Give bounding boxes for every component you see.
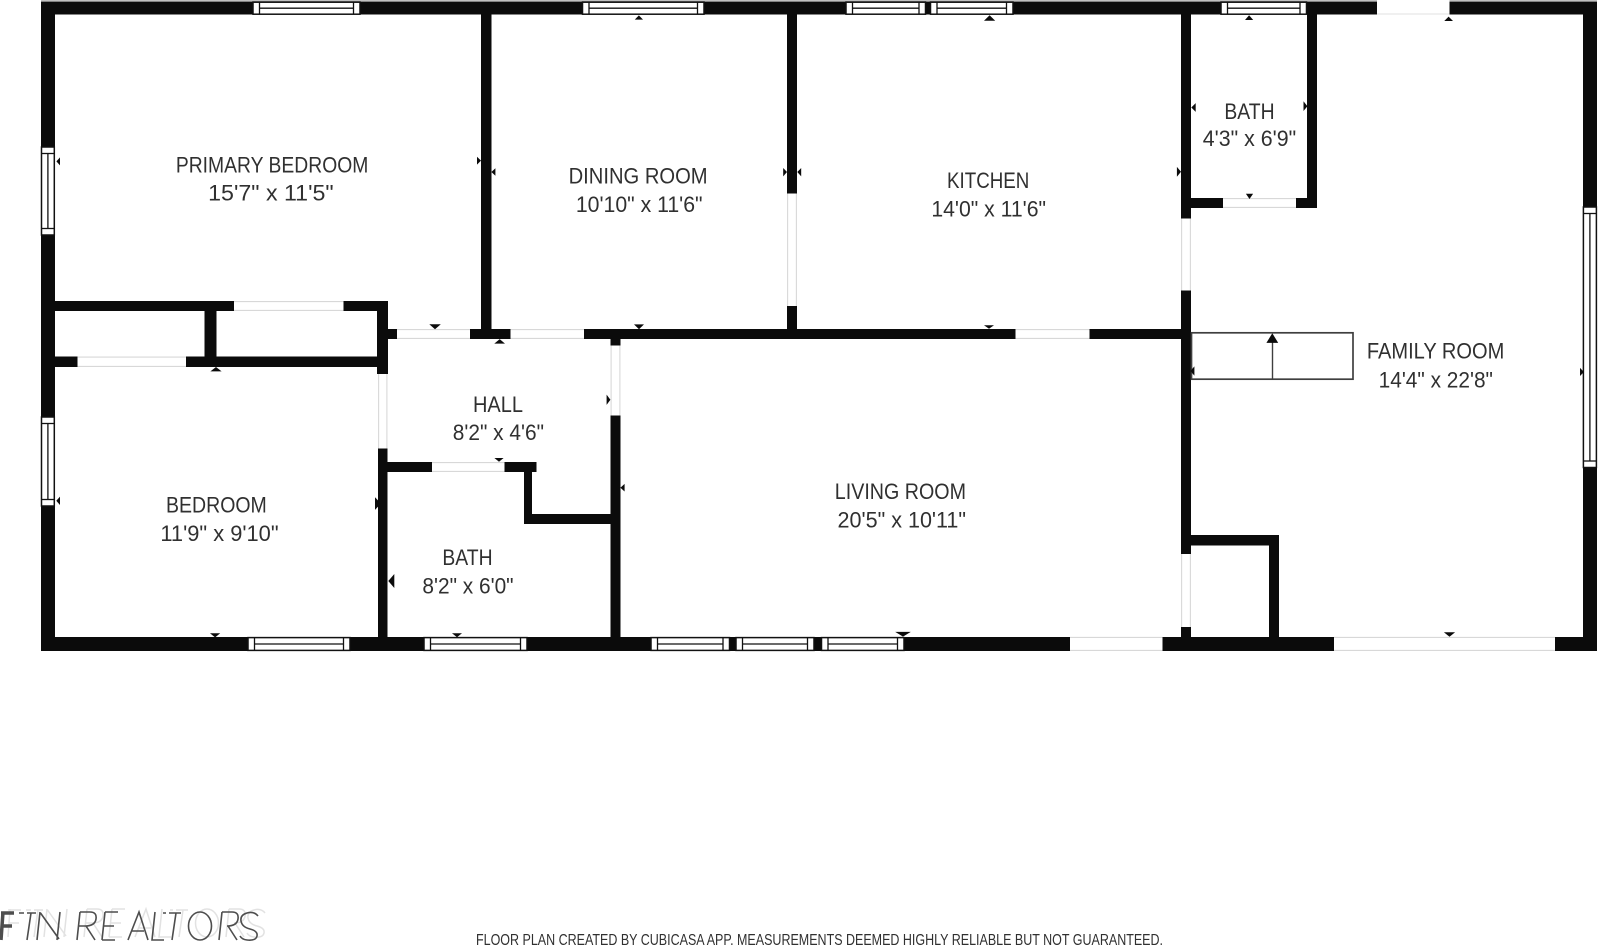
svg-text:20'5" x 10'11": 20'5" x 10'11": [838, 507, 967, 532]
svg-text:15'7" x 11'5": 15'7" x 11'5": [208, 181, 334, 206]
svg-text:PRIMARY BEDROOM: PRIMARY BEDROOM: [176, 152, 369, 177]
svg-text:DINING ROOM: DINING ROOM: [569, 164, 708, 189]
svg-text:4'3" x 6'9": 4'3" x 6'9": [1203, 126, 1296, 151]
svg-text:BATH: BATH: [1224, 99, 1274, 124]
svg-text:10'10" x 11'6": 10'10" x 11'6": [576, 192, 703, 217]
svg-text:8'2" x 4'6": 8'2" x 4'6": [453, 420, 544, 445]
svg-text:FAMILY ROOM: FAMILY ROOM: [1367, 339, 1504, 364]
svg-text:BEDROOM: BEDROOM: [166, 493, 267, 518]
svg-text:FLOOR PLAN CREATED BY CUBICASA: FLOOR PLAN CREATED BY CUBICASA APP. MEAS…: [476, 932, 1163, 947]
svg-text:KITCHEN: KITCHEN: [947, 168, 1029, 193]
svg-text:14'4" x 22'8": 14'4" x 22'8": [1379, 367, 1493, 392]
svg-text:11'9" x 9'10": 11'9" x 9'10": [160, 521, 278, 546]
svg-text:14'0" x 11'6": 14'0" x 11'6": [931, 197, 1046, 222]
svg-text:BATH: BATH: [442, 545, 492, 570]
svg-text:8'2" x 6'0": 8'2" x 6'0": [422, 573, 513, 598]
svg-text:HALL: HALL: [473, 392, 523, 417]
svg-text:LIVING ROOM: LIVING ROOM: [835, 479, 966, 504]
